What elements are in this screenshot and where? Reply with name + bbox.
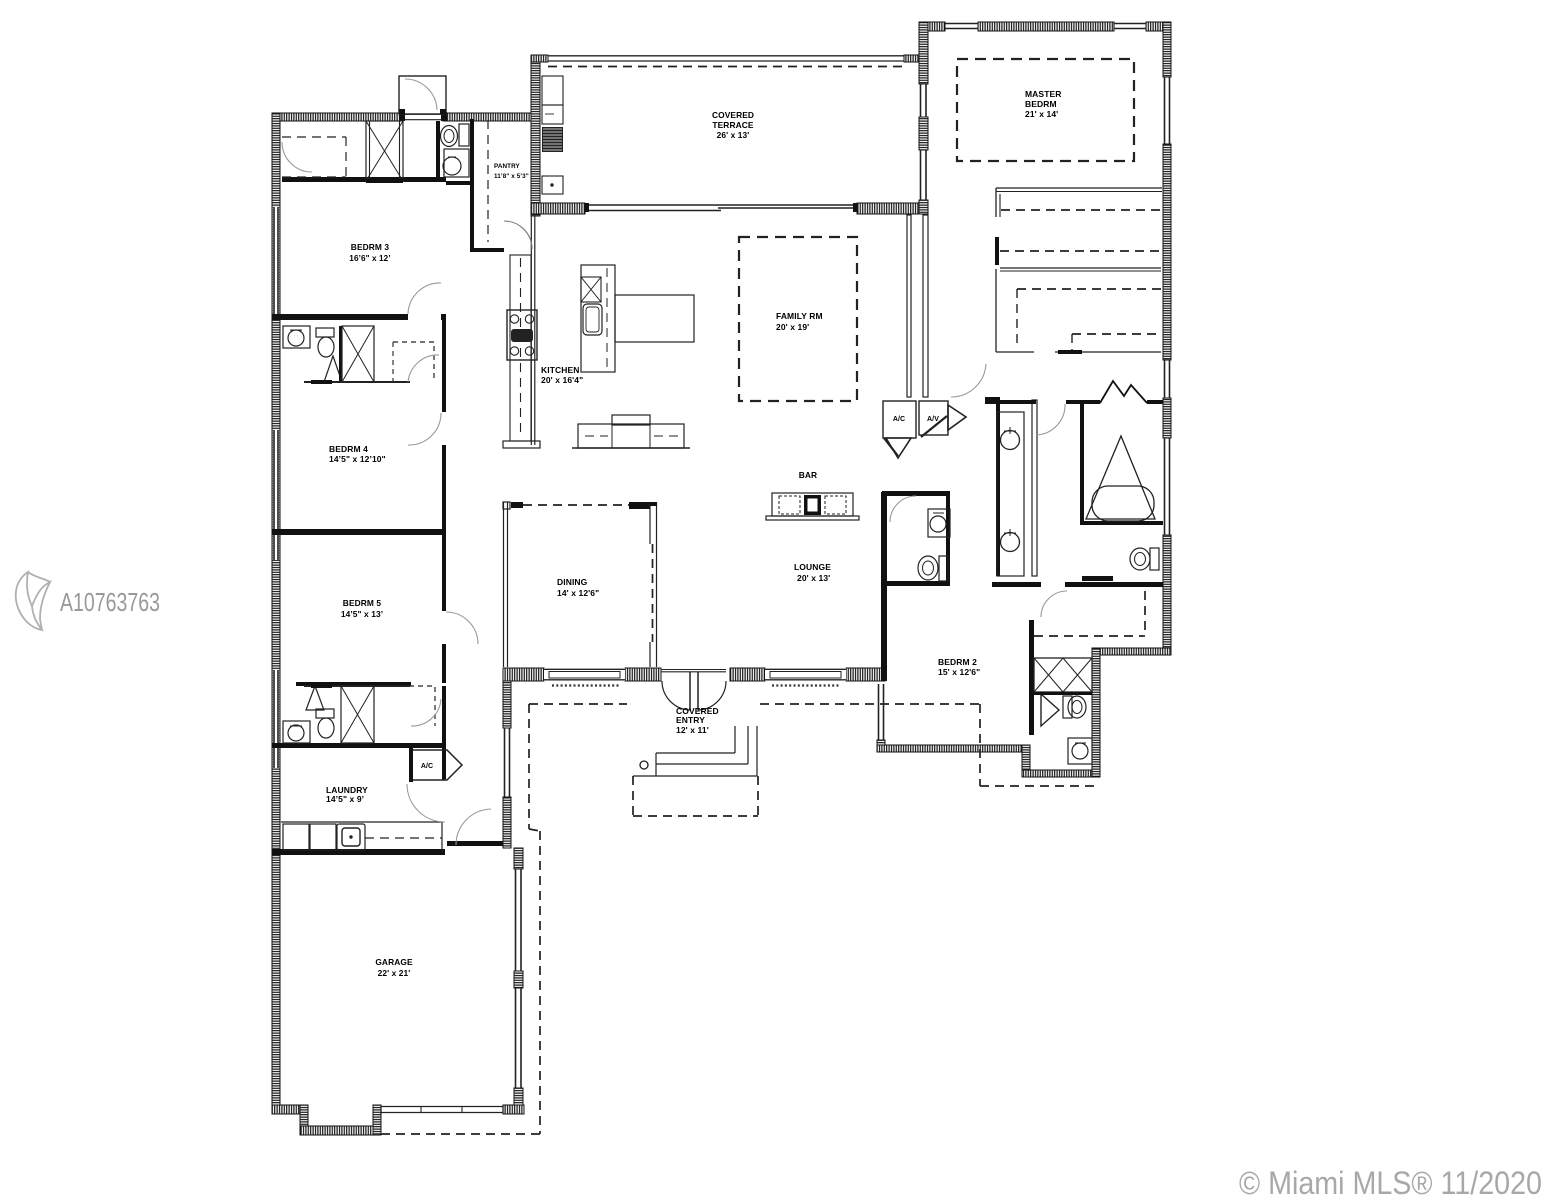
svg-text:BEDRM 2: BEDRM 2	[938, 657, 977, 667]
svg-text:BEDRM 4: BEDRM 4	[329, 444, 368, 454]
svg-text:26' x 13': 26' x 13'	[717, 130, 750, 140]
svg-text:15' x 12'6": 15' x 12'6"	[938, 667, 980, 677]
svg-text:14’5" x 13’: 14’5" x 13’	[341, 609, 383, 619]
svg-text:A/V: A/V	[927, 416, 939, 423]
svg-text:© Miami MLS® 11/2020: © Miami MLS® 11/2020	[1239, 1165, 1542, 1200]
svg-text:A/C: A/C	[421, 763, 433, 770]
svg-text:COVERED: COVERED	[712, 110, 754, 120]
svg-text:14' x 12'6": 14' x 12'6"	[557, 588, 599, 598]
svg-text:16’6" x 12’: 16’6" x 12’	[349, 254, 390, 263]
svg-text:20' x 19': 20' x 19'	[776, 322, 809, 332]
svg-text:PANTRY: PANTRY	[494, 163, 520, 170]
svg-text:ENTRY: ENTRY	[676, 715, 705, 725]
svg-text:BAR: BAR	[799, 470, 817, 480]
svg-text:A/C: A/C	[893, 416, 905, 423]
svg-text:14’5" x 12’10": 14’5" x 12’10"	[329, 454, 386, 464]
svg-text:TERRACE: TERRACE	[712, 120, 753, 130]
svg-text:LOUNGE: LOUNGE	[794, 562, 831, 572]
svg-text:14’5" x 9’: 14’5" x 9’	[326, 794, 364, 804]
svg-text:BEDRM: BEDRM	[1025, 99, 1057, 109]
svg-text:12' x 11': 12' x 11'	[676, 725, 709, 735]
svg-text:MASTER: MASTER	[1025, 89, 1062, 99]
svg-text:11’8" x 5’3": 11’8" x 5’3"	[494, 173, 529, 180]
svg-text:22' x 21': 22' x 21'	[378, 968, 411, 978]
svg-text:BEDRM 5: BEDRM 5	[343, 598, 382, 608]
svg-text:FAMILY RM: FAMILY RM	[776, 311, 823, 321]
svg-text:GARAGE: GARAGE	[375, 957, 413, 967]
svg-text:21' x 14': 21' x 14'	[1025, 109, 1058, 119]
svg-text:DINING: DINING	[557, 577, 588, 587]
svg-text:BEDRM 3: BEDRM 3	[351, 242, 390, 252]
svg-text:A10763763: A10763763	[60, 587, 160, 617]
svg-text:KITCHEN: KITCHEN	[541, 365, 579, 375]
svg-text:20' x 13': 20' x 13'	[797, 573, 830, 583]
svg-text:20' x 16'4": 20' x 16'4"	[541, 375, 583, 385]
